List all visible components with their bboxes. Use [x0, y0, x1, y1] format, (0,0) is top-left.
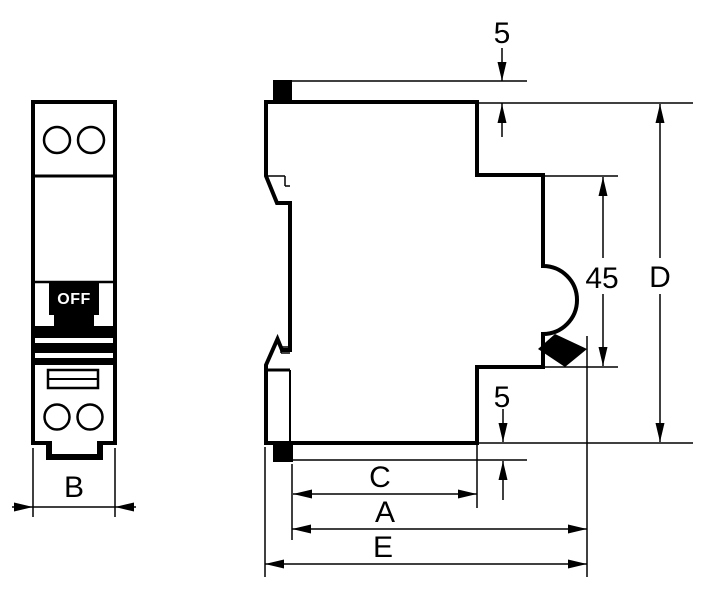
terminal-screw-bottom-right [78, 405, 103, 430]
side-body-outline [266, 102, 577, 443]
dimension-E: E [265, 531, 587, 569]
arrow-45-up [599, 177, 608, 196]
dim-label-C: C [369, 461, 391, 494]
terminal-screw-bottom-left [45, 405, 70, 430]
dimension-45: 45 [585, 177, 618, 366]
dim-label-E: E [373, 531, 393, 564]
front-body-outline [33, 102, 115, 443]
arrow-B-left [14, 503, 33, 512]
arrow-E-right [568, 560, 587, 569]
dimension-5-top: 5 [494, 17, 511, 137]
arrow-45-down [599, 347, 608, 366]
arrow-C-right [458, 490, 477, 499]
drawing-canvas: OFF B [0, 0, 714, 614]
dim-label-5-top: 5 [494, 17, 511, 50]
bottom-tab-inner [52, 441, 97, 454]
arrow-D-up [656, 104, 665, 123]
arrow-B-right [115, 503, 134, 512]
front-view: OFF B [12, 102, 136, 517]
dimension-A: A [292, 496, 587, 534]
front-band-1 [35, 326, 113, 338]
arrow-C-left [293, 490, 312, 499]
toggle-off-label: OFF [57, 291, 91, 308]
dimension-C: C [293, 461, 477, 499]
dim-label-45: 45 [585, 262, 618, 295]
arrow-A-right [568, 525, 587, 534]
front-band-3 [35, 358, 113, 365]
toggle-stem [54, 314, 94, 327]
dim-label-D: D [649, 261, 671, 294]
arrow-A-left [292, 525, 311, 534]
dim-label-A: A [375, 496, 395, 529]
arrow-D-down [656, 423, 665, 442]
arrow-5top-down [498, 62, 507, 81]
front-band-2 [35, 343, 113, 353]
dim-label-5-bottom: 5 [494, 381, 511, 414]
top-clamp-block [273, 80, 292, 102]
arrow-5bot-down [499, 423, 508, 442]
terminal-screw-top-right [78, 127, 104, 153]
toggle-lever-side [538, 334, 587, 367]
side-view: 5 45 D 5 [265, 17, 693, 577]
breaker-dimension-drawing: OFF B [0, 0, 714, 614]
bottom-clamp-block [273, 445, 293, 462]
terminal-screw-top-left [44, 127, 70, 153]
arrow-E-left [265, 560, 284, 569]
dim-label-B: B [64, 471, 84, 504]
dimension-5-bottom: 5 [494, 381, 511, 500]
arrow-5bot-up [499, 461, 508, 480]
arrow-5top-up [498, 104, 507, 123]
dimension-D: D [649, 104, 671, 442]
